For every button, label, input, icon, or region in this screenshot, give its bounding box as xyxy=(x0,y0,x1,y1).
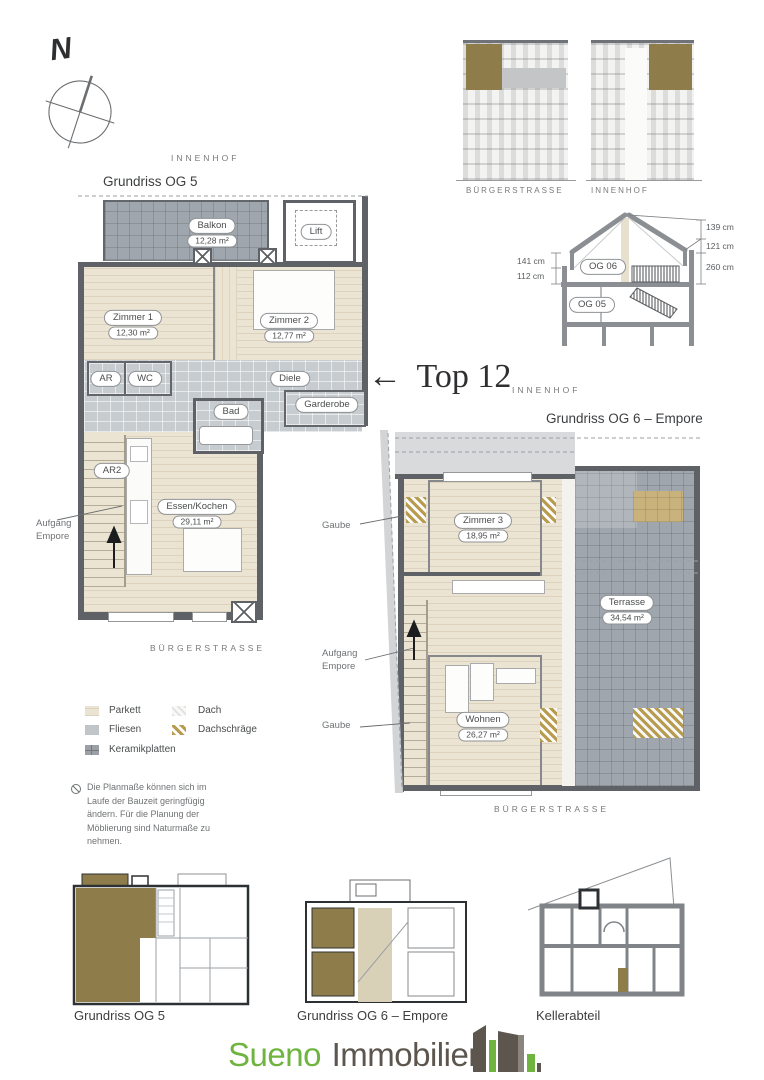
og6-aufgang-label: Aufgang Empore xyxy=(322,648,357,674)
og5-area-balkon: 12,28 m² xyxy=(187,234,237,247)
og5-context-top: INNENHOF xyxy=(171,153,239,163)
og5-wall-kitchen-right xyxy=(257,426,263,620)
elevation-roofline xyxy=(463,40,568,43)
og6-terrasse-light xyxy=(575,470,637,528)
og6-gaube-top-label: Gaube xyxy=(322,520,351,533)
og5-aufgang-line1: Aufgang xyxy=(36,518,71,529)
og5-aufgang-label: Aufgang Empore xyxy=(36,518,71,544)
og6-wohnen-window-1 xyxy=(445,665,469,713)
og5-label-ar2: AR2 xyxy=(94,463,130,479)
og5-title: Grundriss OG 5 xyxy=(103,174,198,189)
og5-label-zimmer1: Zimmer 1 xyxy=(104,310,162,326)
elevation-groundline-left xyxy=(456,180,576,181)
og5-label-balkon: Balkon xyxy=(188,218,235,234)
brand-primary: Sueno xyxy=(228,1036,321,1073)
og5-label-ar: AR xyxy=(90,371,121,387)
top12-label: Top 12 xyxy=(417,358,512,395)
section-label-og05: OG 05 xyxy=(569,297,615,313)
legend-swatch-dach xyxy=(172,706,186,716)
brand-secondary: Immobilien xyxy=(332,1036,487,1073)
og5-area-zimmer1: 12,30 m² xyxy=(108,326,158,339)
section-dim-139: 139 cm xyxy=(706,222,734,232)
elevation-shaft xyxy=(625,48,647,180)
og5-kitchen-stove xyxy=(130,500,148,524)
og5-balkon-floor xyxy=(103,200,269,261)
mini-plan-og6-drawing xyxy=(288,872,483,1012)
og6-title: Grundriss OG 6 – Empore xyxy=(546,411,703,426)
og5-label-garderobe: Garderobe xyxy=(295,397,358,413)
legend-label-parkett: Parkett xyxy=(109,705,141,716)
section-dim-260: 260 cm xyxy=(706,262,734,272)
elevation-gray-band xyxy=(502,68,566,88)
og6-label-zimmer3: Zimmer 3 xyxy=(454,513,512,529)
mini-plan-keller-caption: Kellerabteil xyxy=(536,1008,600,1023)
top12-arrow-icon: ← xyxy=(368,358,402,395)
og6-label-wohnen: Wohnen xyxy=(456,712,509,728)
og6-label-terrasse: Terrasse xyxy=(600,595,654,611)
og5-aufgang-line2: Empore xyxy=(36,531,69,542)
note-text: Die Planmaße können sich im Laufe der Ba… xyxy=(87,781,215,849)
og6-gallery-window xyxy=(452,580,545,594)
og6-wall-mid xyxy=(404,572,540,576)
section-label-og06: OG 06 xyxy=(580,259,626,275)
elevation-groundline-right xyxy=(586,180,702,181)
legend-label-fliesen: Fliesen xyxy=(109,724,141,735)
section-dim-121: 121 cm xyxy=(706,241,734,251)
mini-plan-og6-caption: Grundriss OG 6 – Empore xyxy=(297,1008,448,1023)
og5-kitchen-sink xyxy=(130,446,148,462)
og5-hatch-box-bottom xyxy=(231,601,257,623)
og6-area-terrasse: 34,54 m² xyxy=(602,611,652,624)
og5-hatch-box-balcony-right xyxy=(258,248,277,265)
legend-label-keramikplatten: Keramikplatten xyxy=(109,744,176,755)
og6-context-bottom: BÜRGERSTRASSE xyxy=(494,804,609,814)
og5-label-lift: Lift xyxy=(301,224,332,240)
og5-bathtub xyxy=(199,426,253,445)
note-marker-icon xyxy=(71,784,81,794)
og6-terrasse-schraege-patch xyxy=(633,708,683,738)
og6-wohnen-sofa xyxy=(496,668,536,684)
og6-context-top: INNENHOF xyxy=(512,385,580,395)
og5-area-essen: 29,11 m² xyxy=(173,515,222,528)
legend-label-dach: Dach xyxy=(198,705,221,716)
og6-wall-terrasse-top xyxy=(575,466,700,471)
og5-label-wc: WC xyxy=(128,371,162,387)
og5-dining-table xyxy=(183,528,242,572)
section-dim-141: 141 cm xyxy=(517,256,545,266)
elevation-innenhof xyxy=(591,40,694,180)
og5-window-bottom-2 xyxy=(192,612,227,622)
elevation-roofline-2 xyxy=(591,40,694,43)
og6-area-wohnen: 26,27 m² xyxy=(458,728,508,741)
elevation-olive-block xyxy=(466,44,502,90)
elevation-caption-left: BÜRGERSTRASSE xyxy=(466,186,564,195)
brand-logo-text: Sueno Immobilien xyxy=(228,1036,486,1074)
og6-terrasse-wall-gap xyxy=(562,479,575,786)
elevation-olive-block-2 xyxy=(649,44,692,90)
og5-label-bad: Bad xyxy=(214,404,249,420)
og6-zimmer3-window xyxy=(443,472,532,482)
legend-swatch-fliesen xyxy=(85,725,99,735)
legend-label-dachschraege: Dachschräge xyxy=(198,724,257,735)
elevation-buergerstrasse xyxy=(463,40,568,180)
mini-plan-keller-drawing xyxy=(522,848,697,1008)
og6-terrasse-tan-patch xyxy=(633,491,683,522)
og6-schraege-left-top xyxy=(406,497,426,523)
brand-logo-icon xyxy=(472,1022,542,1074)
elevation-caption-right: INNENHOF xyxy=(591,186,649,195)
legend-swatch-parkett xyxy=(85,706,99,716)
og5-window-bottom-1 xyxy=(108,612,174,622)
top12-marker: ← Top 12 xyxy=(368,358,511,396)
og6-area-zimmer3: 18,95 m² xyxy=(458,529,508,542)
og6-roof-band xyxy=(395,432,575,476)
og5-label-essen: Essen/Kochen xyxy=(157,499,236,515)
og5-stairs xyxy=(84,435,126,587)
section-dim-112: 112 cm xyxy=(517,271,544,281)
og6-aufgang-line2: Empore xyxy=(322,661,355,672)
og5-context-bottom: BÜRGERSTRASSE xyxy=(150,643,265,653)
og6-wohnen-window-2 xyxy=(470,663,494,701)
mini-plan-og5-caption: Grundriss OG 5 xyxy=(74,1008,165,1023)
legend-swatch-keramikplatten xyxy=(85,745,99,755)
og6-aufgang-line1: Aufgang xyxy=(322,648,357,659)
og5-label-diele: Diele xyxy=(270,371,310,387)
legend-swatch-dachschraege xyxy=(172,725,186,735)
og6-schraege-right-bottom xyxy=(540,708,557,742)
og5-label-zimmer2: Zimmer 2 xyxy=(260,313,318,329)
compass-icon xyxy=(38,40,122,150)
og6-stairs xyxy=(404,600,428,786)
og5-area-zimmer2: 12,77 m² xyxy=(264,329,314,342)
plan-sheet: N INNENHOF Grundriss OG 5 Ba xyxy=(0,0,764,1080)
og6-wall-terrasse-right xyxy=(694,466,700,791)
og5-hatch-box-balcony-left xyxy=(193,248,212,265)
og6-gaube-bottom-label: Gaube xyxy=(322,720,351,733)
mini-plan-og5-drawing xyxy=(60,868,260,1013)
